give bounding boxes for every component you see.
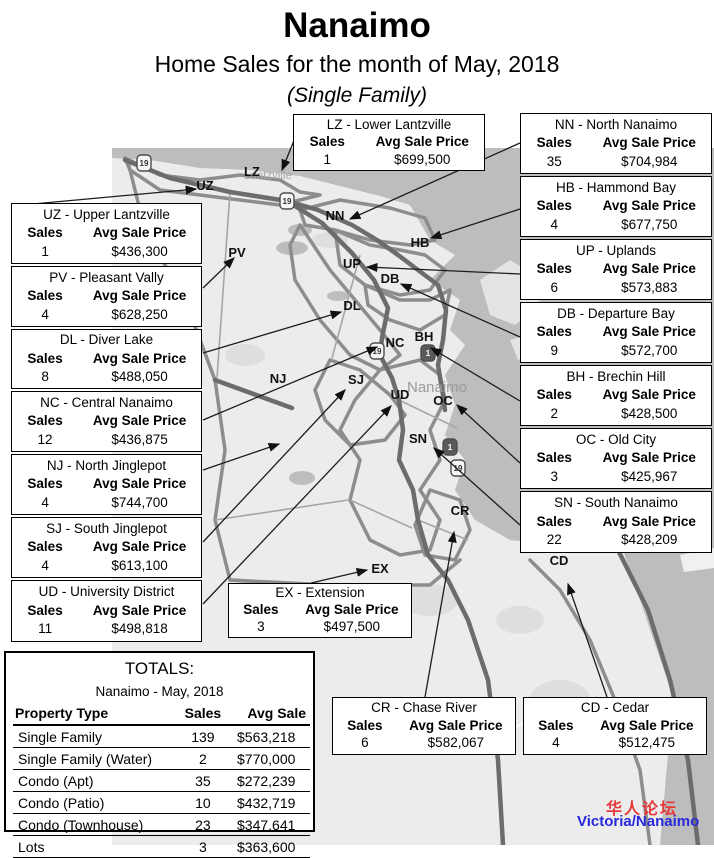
price-value: $572,700: [588, 344, 712, 359]
sales-value: 4: [12, 496, 78, 511]
highway-shield-number: 19: [283, 197, 292, 206]
map-label-nj: NJ: [270, 371, 287, 386]
callout-title: NJ - North Jinglepot: [12, 459, 201, 474]
sales-header: Sales: [12, 352, 78, 367]
sales-value: 4: [12, 559, 78, 574]
callout-title: SJ - South Jinglepot: [12, 522, 201, 537]
sales-header: Sales: [521, 515, 588, 530]
totals-panel: TOTALS: Nanaimo - May, 2018 Property Typ…: [4, 651, 315, 832]
callout-title: BH - Brechin Hill: [521, 370, 711, 385]
sales-value: 8: [12, 370, 78, 385]
page-title: Nanaimo: [0, 6, 714, 46]
map-label-dl: DL: [343, 298, 360, 313]
sales-header: Sales: [521, 199, 588, 214]
page-header: Nanaimo Home Sales for the month of May,…: [0, 0, 714, 108]
callout-title: HB - Hammond Bay: [521, 181, 711, 196]
sales-header: Sales: [12, 540, 78, 555]
sales-header: Sales: [521, 262, 588, 277]
price-value: $628,250: [78, 308, 201, 323]
map-label-db: DB: [381, 271, 400, 286]
map-label-hb: HB: [411, 235, 430, 250]
sales-header: Sales: [12, 604, 78, 619]
callout-title: EX - Extension: [229, 586, 411, 601]
page-subtitle-2: (Single Family): [0, 84, 714, 108]
avg-price-header: Avg Sale Price: [397, 719, 515, 734]
map-label-oc: OC: [433, 393, 453, 408]
avg-price-header: Avg Sale Price: [78, 352, 201, 367]
sales-header: Sales: [521, 388, 588, 403]
callout-title: NN - North Nanaimo: [521, 118, 711, 133]
callout-lz: LZ - Lower Lantzville SalesAvg Sale Pric…: [293, 114, 485, 171]
highway-shield-number: 1: [426, 349, 431, 358]
property-type: Single Family (Water): [13, 748, 181, 770]
sales-value: 3: [229, 620, 293, 635]
totals-subtitle: Nanaimo - May, 2018: [6, 684, 313, 699]
callout-title: DB - Departure Bay: [521, 307, 711, 322]
map-label-cd: CD: [550, 553, 569, 568]
sales-header: Sales: [12, 289, 78, 304]
price-value: $498,818: [78, 622, 201, 637]
sales-header: Sales: [12, 477, 78, 492]
sales-header: Sales: [294, 135, 361, 150]
sales-header: Sales: [12, 414, 78, 429]
avg-price-header: Avg Sale Price: [588, 515, 712, 530]
table-row: Condo (Townhouse) 23 $347,641: [13, 814, 310, 836]
sales-header: Sales: [524, 719, 588, 734]
callout-title: OC - Old City: [521, 433, 711, 448]
price-value: $699,500: [361, 153, 485, 168]
sales-count: 35: [181, 770, 225, 792]
callout-title: CR - Chase River: [333, 701, 515, 716]
sales-value: 22: [521, 533, 588, 548]
totals-table: Property Type Sales Avg Sale Single Fami…: [13, 704, 310, 858]
price-value: $613,100: [78, 559, 201, 574]
map-label-pv: PV: [228, 245, 246, 260]
price-value: $582,067: [397, 736, 515, 751]
avg-price-header: Avg Sale Price: [588, 325, 712, 340]
avg-sale: $363,600: [225, 836, 310, 858]
price-value: $428,500: [588, 407, 712, 422]
callout-ex: EX - Extension SalesAvg Sale Price 3$497…: [228, 583, 412, 638]
avg-price-header: Avg Sale Price: [78, 604, 201, 619]
map-label-sj: SJ: [348, 372, 364, 387]
sales-value: 1: [294, 153, 361, 168]
callout-sj: SJ - South Jinglepot SalesAvg Sale Price…: [11, 517, 202, 578]
callout-bh: BH - Brechin Hill SalesAvg Sale Price 2$…: [520, 365, 712, 426]
callout-title: NC - Central Nanaimo: [12, 396, 201, 411]
map-label-nc: NC: [386, 335, 405, 350]
callout-title: CD - Cedar: [524, 701, 706, 716]
table-row: Condo (Apt) 35 $272,239: [13, 770, 310, 792]
map-label-bh: BH: [415, 329, 434, 344]
callout-title: SN - South Nanaimo: [521, 496, 711, 511]
map-label-lz: LZ: [244, 164, 260, 179]
price-value: $497,500: [293, 620, 411, 635]
totals-title: TOTALS:: [6, 659, 313, 679]
callout-up: UP - Uplands SalesAvg Sale Price 6$573,8…: [520, 239, 712, 300]
avg-price-header: Avg Sale Price: [588, 199, 712, 214]
map-label-cr: CR: [451, 503, 470, 518]
sales-header: Sales: [521, 136, 588, 151]
sales-value: 1: [12, 245, 78, 260]
sales-count: 2: [181, 748, 225, 770]
avg-price-header: Avg Sale Price: [78, 540, 201, 555]
table-row: Condo (Patio) 10 $432,719: [13, 792, 310, 814]
avg-price-header: Avg Sale Price: [588, 451, 712, 466]
westwood-lake: [289, 471, 315, 485]
property-type: Condo (Townhouse): [13, 814, 181, 836]
callout-nc: NC - Central Nanaimo SalesAvg Sale Price…: [11, 391, 202, 452]
sales-value: 9: [521, 344, 588, 359]
avg-price-header: Avg Sale Price: [588, 262, 712, 277]
callout-uz: UZ - Upper Lantzville SalesAvg Sale Pric…: [11, 203, 202, 264]
highway-shield-number: 1: [448, 443, 453, 452]
sales-value: 4: [12, 308, 78, 323]
callout-pv: PV - Pleasant Vally SalesAvg Sale Price …: [11, 266, 202, 327]
price-value: $677,750: [588, 218, 712, 233]
callout-title: PV - Pleasant Vally: [12, 271, 201, 286]
price-value: $436,300: [78, 245, 201, 260]
sales-header: Sales: [12, 226, 78, 241]
sales-header: Sales: [521, 325, 588, 340]
sales-value: 6: [333, 736, 397, 751]
table-row: Single Family (Water) 2 $770,000: [13, 748, 310, 770]
price-value: $425,967: [588, 470, 712, 485]
sales-value: 4: [524, 736, 588, 751]
price-value: $428,209: [588, 533, 712, 548]
map-label-sn: SN: [409, 431, 427, 446]
totals-header-row: Property Type Sales Avg Sale: [13, 704, 310, 725]
park-patch: [496, 606, 544, 634]
callout-sn: SN - South Nanaimo SalesAvg Sale Price 2…: [520, 491, 712, 553]
avg-price-header: Avg Sale Price: [78, 414, 201, 429]
avg-sale: $347,641: [225, 814, 310, 836]
highway-shield-number: 19: [454, 464, 463, 473]
callout-nj: NJ - North Jinglepot SalesAvg Sale Price…: [11, 454, 202, 515]
callout-nn: NN - North Nanaimo SalesAvg Sale Price 3…: [520, 113, 712, 174]
sales-count: 10: [181, 792, 225, 814]
map-label-ex: EX: [371, 561, 389, 576]
callout-title: UZ - Upper Lantzville: [12, 208, 201, 223]
sales-value: 6: [521, 281, 588, 296]
callout-cd: CD - Cedar SalesAvg Sale Price 4$512,475: [523, 697, 707, 755]
avg-price-header: Avg Sale Price: [361, 135, 485, 150]
callout-ud: UD - University District SalesAvg Sale P…: [11, 580, 202, 642]
sales-value: 35: [521, 155, 588, 170]
callout-hb: HB - Hammond Bay SalesAvg Sale Price 4$6…: [520, 176, 712, 237]
callout-title: UP - Uplands: [521, 244, 711, 259]
map-label-ud: UD: [391, 387, 410, 402]
map-label-up: UP: [343, 256, 361, 271]
sales-header: Sales: [521, 451, 588, 466]
price-value: $704,984: [588, 155, 712, 170]
sales-count: 23: [181, 814, 225, 836]
price-value: $573,883: [588, 281, 712, 296]
park-patch: [225, 344, 265, 366]
callout-cr: CR - Chase River SalesAvg Sale Price 6$5…: [332, 697, 516, 755]
col-property-type: Property Type: [13, 704, 181, 725]
sales-value: 2: [521, 407, 588, 422]
price-value: $512,475: [588, 736, 706, 751]
sales-header: Sales: [333, 719, 397, 734]
avg-sale: $432,719: [225, 792, 310, 814]
table-row: Lots 3 $363,600: [13, 836, 310, 858]
avg-sale: $272,239: [225, 770, 310, 792]
avg-price-header: Avg Sale Price: [588, 136, 712, 151]
callout-dl: DL - Diver Lake SalesAvg Sale Price 8$48…: [11, 329, 202, 389]
property-type: Lots: [13, 836, 181, 858]
price-value: $744,700: [78, 496, 201, 511]
sales-value: 3: [521, 470, 588, 485]
map-label-nn: NN: [326, 208, 345, 223]
col-sales: Sales: [181, 704, 225, 725]
callout-db: DB - Departure Bay SalesAvg Sale Price 9…: [520, 302, 712, 363]
sales-value: 11: [12, 622, 78, 637]
sales-value: 4: [521, 218, 588, 233]
col-avg-sale: Avg Sale: [225, 704, 310, 725]
sales-value: 12: [12, 433, 78, 448]
sales-header: Sales: [229, 603, 293, 618]
avg-price-header: Avg Sale Price: [293, 603, 411, 618]
callout-title: LZ - Lower Lantzville: [294, 118, 484, 133]
property-type: Condo (Apt): [13, 770, 181, 792]
avg-sale: $563,218: [225, 725, 310, 748]
sales-count: 139: [181, 725, 225, 748]
property-type: Condo (Patio): [13, 792, 181, 814]
property-type: Single Family: [13, 725, 181, 748]
watermark-en: Victoria/Nanaimo: [577, 813, 699, 830]
map-label-uz: UZ: [196, 178, 213, 193]
avg-sale: $770,000: [225, 748, 310, 770]
price-value: $436,875: [78, 433, 201, 448]
table-row: Single Family 139 $563,218: [13, 725, 310, 748]
page-subtitle: Home Sales for the month of May, 2018: [0, 51, 714, 78]
avg-price-header: Avg Sale Price: [78, 289, 201, 304]
avg-price-header: Avg Sale Price: [588, 388, 712, 403]
callout-title: UD - University District: [12, 585, 201, 600]
avg-price-header: Avg Sale Price: [78, 226, 201, 241]
callout-oc: OC - Old City SalesAvg Sale Price 3$425,…: [520, 428, 712, 489]
highway-shield-number: 19: [140, 159, 149, 168]
callout-title: DL - Diver Lake: [12, 333, 201, 348]
highway-shield-number: 19: [373, 347, 382, 356]
avg-price-header: Avg Sale Price: [78, 477, 201, 492]
sales-count: 3: [181, 836, 225, 858]
avg-price-header: Avg Sale Price: [588, 719, 706, 734]
price-value: $488,050: [78, 370, 201, 385]
